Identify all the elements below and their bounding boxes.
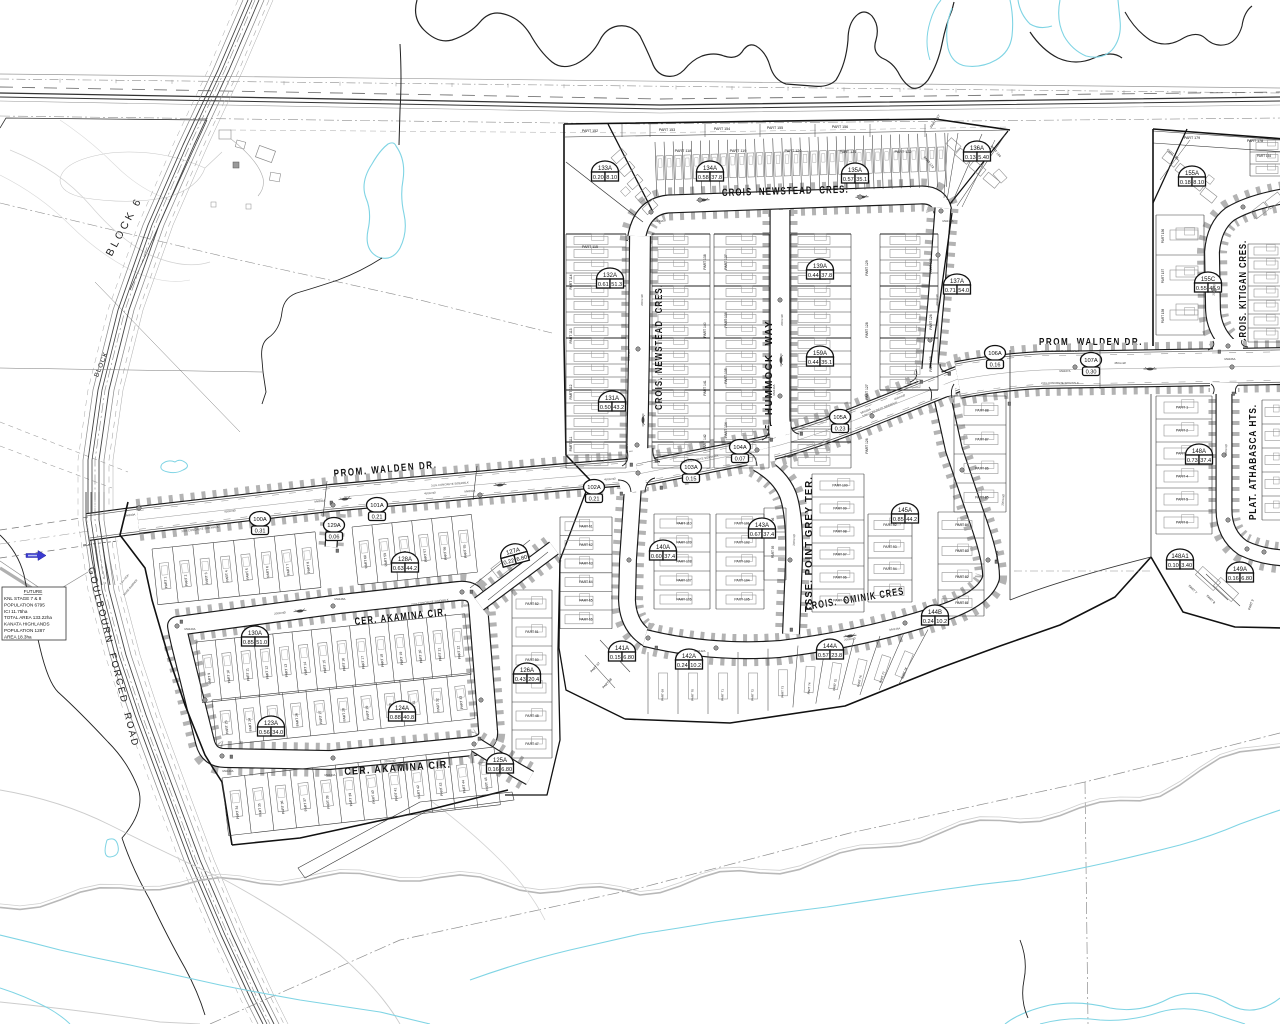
svg-text:107A: 107A — [1084, 358, 1098, 364]
svg-text:PART 135: PART 135 — [724, 368, 728, 383]
svg-text:37.4: 37.4 — [763, 532, 774, 538]
svg-text:6.80: 6.80 — [501, 767, 512, 773]
svg-text:140A: 140A — [656, 545, 670, 551]
svg-text:PART 61: PART 61 — [579, 524, 592, 528]
svg-text:ICI 11.75ha: ICI 11.75ha — [4, 609, 28, 614]
svg-text:PART 111: PART 111 — [569, 437, 573, 452]
svg-text:0.57: 0.57 — [818, 653, 829, 659]
svg-text:0.13: 0.13 — [965, 155, 976, 161]
svg-text:149A: 149A — [1233, 567, 1247, 573]
svg-text:PART 142: PART 142 — [703, 434, 707, 449]
svg-text:0.30: 0.30 — [1086, 370, 1097, 376]
svg-text:PART 119: PART 119 — [730, 149, 747, 153]
svg-text:MH107A: MH107A — [1060, 369, 1071, 373]
svg-text:0.16: 0.16 — [488, 767, 499, 773]
svg-text:129A: 129A — [327, 523, 341, 529]
svg-text:100A: 100A — [253, 517, 267, 523]
svg-text:0.71: 0.71 — [945, 288, 956, 294]
svg-text:MH106A: MH106A — [1225, 357, 1236, 361]
svg-text:6.80: 6.80 — [1241, 576, 1252, 582]
svg-text:0.18: 0.18 — [1180, 180, 1191, 186]
svg-text:PART 2: PART 2 — [1176, 429, 1188, 433]
svg-text:145A: 145A — [898, 508, 912, 514]
svg-text:PART 66: PART 66 — [579, 617, 592, 621]
svg-text:PART 87: PART 87 — [975, 438, 988, 442]
svg-text:2.0m CONCRETE SIDEWALK: 2.0m CONCRETE SIDEWALK — [1041, 349, 1079, 353]
svg-text:PART 94: PART 94 — [883, 567, 896, 571]
svg-text:0.31: 0.31 — [255, 529, 266, 535]
svg-text:TSSE. POINT GREY TER.: TSSE. POINT GREY TER. — [803, 476, 815, 612]
svg-text:PART 128: PART 128 — [865, 322, 869, 337]
svg-text:20.4: 20.4 — [528, 677, 539, 683]
svg-text:PART 93: PART 93 — [883, 545, 896, 549]
svg-text:PART 109: PART 109 — [676, 541, 691, 545]
svg-text:POPULATION 1287: POPULATION 1287 — [4, 628, 45, 633]
svg-text:6.80: 6.80 — [623, 655, 634, 661]
svg-text:0.44: 0.44 — [808, 273, 819, 279]
svg-text:148A1: 148A1 — [1171, 554, 1189, 560]
svg-text:123A: 123A — [264, 721, 278, 727]
svg-text:PART 114: PART 114 — [569, 274, 573, 289]
svg-text:10.2: 10.2 — [936, 619, 947, 625]
svg-text:PART 100: PART 100 — [832, 484, 847, 488]
svg-text:0.73: 0.73 — [1187, 458, 1198, 464]
svg-text:139A: 139A — [813, 264, 827, 270]
svg-text:135A: 135A — [848, 168, 862, 174]
svg-text:200mmØ: 200mmØ — [780, 313, 784, 325]
svg-text:PART 71: PART 71 — [721, 689, 725, 701]
svg-text:37.8: 37.8 — [821, 273, 832, 279]
svg-text:PART 50: PART 50 — [525, 658, 538, 662]
svg-text:0.20: 0.20 — [593, 175, 604, 181]
svg-text:44.2: 44.2 — [406, 566, 417, 572]
svg-text:43.2: 43.2 — [613, 405, 624, 411]
svg-text:TOTAL AREA 133.22ha: TOTAL AREA 133.22ha — [4, 615, 52, 620]
svg-text:159A: 159A — [813, 351, 827, 357]
svg-text:PART 134: PART 134 — [724, 422, 728, 437]
svg-text:PART 85: PART 85 — [975, 496, 988, 500]
svg-text:MH128A: MH128A — [335, 597, 346, 601]
svg-text:PART 95: PART 95 — [833, 599, 846, 603]
svg-text:0.15: 0.15 — [610, 655, 621, 661]
svg-text:POPULATION 6795: POPULATION 6795 — [4, 602, 45, 607]
svg-text:PART 157: PART 157 — [1161, 269, 1165, 284]
svg-text:PART 104: PART 104 — [734, 579, 749, 583]
svg-text:MH132A: MH132A — [627, 349, 631, 360]
svg-text:104A: 104A — [733, 445, 747, 451]
svg-text:51.3: 51.3 — [611, 282, 622, 288]
svg-text:PART 120: PART 120 — [784, 149, 801, 153]
svg-text:PART 106: PART 106 — [676, 598, 691, 602]
svg-text:FUTURE: FUTURE — [24, 589, 43, 594]
svg-text:144A: 144A — [823, 644, 837, 650]
svg-text:34.0: 34.0 — [272, 730, 283, 736]
svg-text:125A: 125A — [493, 758, 507, 764]
svg-text:37.8: 37.8 — [711, 175, 722, 181]
svg-text:136A: 136A — [970, 146, 984, 152]
svg-text:MH134A: MH134A — [653, 219, 664, 223]
svg-text:PART 156: PART 156 — [832, 125, 848, 129]
svg-text:PART 102: PART 102 — [734, 541, 749, 545]
svg-text:PART 73: PART 73 — [781, 686, 785, 698]
svg-text:CROIS. KITIGAN CRES.: CROIS. KITIGAN CRES. — [1237, 240, 1249, 344]
svg-text:PART 136: PART 136 — [724, 312, 728, 327]
svg-text:2.0m CONCRETE SIDEWALK: 2.0m CONCRETE SIDEWALK — [1041, 381, 1079, 385]
svg-text:PART 64: PART 64 — [579, 580, 592, 584]
svg-text:0.06: 0.06 — [329, 535, 340, 541]
svg-text:PLAT. ATHABASCA HTS.: PLAT. ATHABASCA HTS. — [1247, 404, 1259, 520]
svg-text:130A: 130A — [248, 631, 262, 637]
svg-text:CROIS. NEWSTEAD CRES.: CROIS. NEWSTEAD CRES. — [653, 284, 665, 410]
svg-text:PART 88: PART 88 — [975, 409, 988, 413]
svg-text:142A: 142A — [682, 654, 696, 660]
svg-text:0.10: 0.10 — [1168, 563, 1179, 569]
svg-text:KANATA HIGHLANDS: KANATA HIGHLANDS — [4, 622, 50, 627]
svg-text:PART 5: PART 5 — [1176, 498, 1188, 502]
svg-text:MH124A: MH124A — [325, 773, 336, 777]
svg-text:0.63: 0.63 — [393, 566, 404, 572]
svg-text:PART 137: PART 137 — [724, 254, 728, 269]
svg-text:5.40: 5.40 — [978, 155, 989, 161]
svg-text:0.56: 0.56 — [259, 730, 270, 736]
svg-text:PART 118: PART 118 — [675, 149, 692, 153]
svg-text:PART 126: PART 126 — [929, 314, 933, 329]
svg-text:0.43: 0.43 — [515, 677, 526, 683]
svg-text:PART 155: PART 155 — [767, 126, 783, 130]
svg-text:PART 122: PART 122 — [894, 150, 911, 154]
svg-text:143A: 143A — [755, 523, 769, 529]
svg-text:134A: 134A — [703, 166, 717, 172]
svg-text:0.21: 0.21 — [589, 497, 600, 503]
svg-text:0.07: 0.07 — [735, 457, 746, 463]
svg-text:PART 51: PART 51 — [525, 630, 538, 634]
svg-text:0.85: 0.85 — [243, 640, 254, 646]
svg-text:148A: 148A — [1192, 449, 1206, 455]
svg-text:PART 129: PART 129 — [865, 260, 869, 275]
svg-text:PART 99: PART 99 — [833, 507, 846, 511]
svg-text:124A: 124A — [395, 706, 409, 712]
svg-text:10.2: 10.2 — [690, 663, 701, 669]
svg-text:MH136A: MH136A — [772, 384, 776, 395]
svg-text:MH123A: MH123A — [223, 769, 234, 773]
svg-text:0.60: 0.60 — [651, 554, 662, 560]
svg-text:131A: 131A — [605, 396, 619, 402]
svg-text:PART 62: PART 62 — [579, 543, 592, 547]
svg-text:126A: 126A — [520, 668, 534, 674]
svg-text:PART 125: PART 125 — [929, 258, 933, 273]
svg-text:PART 6: PART 6 — [1176, 521, 1188, 525]
svg-text:105A: 105A — [833, 415, 847, 421]
svg-text:PART 152: PART 152 — [582, 129, 598, 133]
svg-text:155C: 155C — [1201, 277, 1216, 283]
svg-text:PART 1: PART 1 — [1176, 406, 1188, 410]
svg-text:0.15: 0.15 — [686, 477, 697, 483]
svg-text:0.61: 0.61 — [598, 282, 609, 288]
svg-text:PART 97: PART 97 — [833, 553, 846, 557]
svg-text:8.10: 8.10 — [606, 175, 617, 181]
svg-text:PART 128: PART 128 — [929, 356, 933, 371]
svg-text:PART 98: PART 98 — [833, 530, 846, 534]
svg-text:MH131A: MH131A — [625, 444, 629, 455]
svg-text:PART 154: PART 154 — [1257, 154, 1272, 158]
svg-text:132A: 132A — [603, 273, 617, 279]
svg-text:44.2: 44.2 — [906, 517, 917, 523]
svg-text:PART 83: PART 83 — [955, 549, 968, 553]
svg-text:106A: 106A — [988, 351, 1002, 357]
svg-text:PART 101: PART 101 — [734, 522, 749, 526]
svg-text:200mmØ: 200mmØ — [792, 533, 796, 545]
svg-text:141A: 141A — [615, 646, 629, 652]
svg-text:0.44: 0.44 — [808, 360, 819, 366]
svg-text:3.40: 3.40 — [1181, 563, 1192, 569]
svg-text:PART 95: PART 95 — [771, 545, 775, 558]
svg-text:200mmØ: 200mmØ — [935, 293, 939, 305]
svg-text:137A: 137A — [950, 279, 964, 285]
svg-text:MH120A: MH120A — [185, 627, 196, 631]
svg-text:PART 86: PART 86 — [975, 467, 988, 471]
svg-text:PART 48: PART 48 — [525, 714, 538, 718]
svg-text:PART 126: PART 126 — [865, 438, 869, 453]
svg-text:PART 107: PART 107 — [676, 579, 691, 583]
svg-text:PART 82: PART 82 — [955, 575, 968, 579]
svg-text:0.24: 0.24 — [677, 663, 688, 669]
svg-text:51.0: 51.0 — [256, 640, 267, 646]
svg-text:200mmØ: 200mmØ — [640, 293, 644, 305]
svg-text:0.23: 0.23 — [835, 427, 846, 433]
svg-text:450mmØ: 450mmØ — [1114, 361, 1126, 365]
svg-text:8.10: 8.10 — [1193, 180, 1204, 186]
svg-text:PART 121: PART 121 — [839, 150, 856, 154]
svg-text:37.4: 37.4 — [1200, 458, 1211, 464]
svg-text:PART 156: PART 156 — [1161, 229, 1165, 244]
svg-text:PART 110: PART 110 — [676, 522, 691, 526]
svg-text:54.0: 54.0 — [958, 288, 969, 294]
svg-text:PART 108: PART 108 — [676, 560, 691, 564]
svg-text:PART 138: PART 138 — [703, 254, 707, 269]
svg-text:PART 47: PART 47 — [525, 742, 538, 746]
svg-text:133A: 133A — [598, 166, 612, 172]
svg-text:AREA 18.3ha: AREA 18.3ha — [4, 634, 32, 639]
svg-text:144B: 144B — [928, 610, 942, 616]
svg-text:103A: 103A — [684, 465, 698, 471]
svg-text:101A: 101A — [370, 503, 384, 509]
svg-text:PART 154: PART 154 — [714, 127, 730, 131]
svg-text:PART 140: PART 140 — [703, 322, 707, 337]
svg-text:37.4: 37.4 — [664, 554, 675, 560]
svg-text:MH135A: MH135A — [943, 219, 954, 223]
svg-text:PART 65: PART 65 — [579, 599, 592, 603]
svg-text:PART 115: PART 115 — [582, 245, 598, 249]
svg-text:PART 179: PART 179 — [1184, 136, 1200, 140]
svg-text:PART 127: PART 127 — [865, 384, 869, 399]
svg-text:PART 96: PART 96 — [833, 576, 846, 580]
svg-text:102A: 102A — [587, 485, 601, 491]
svg-text:0.55: 0.55 — [1196, 286, 1207, 292]
svg-text:0.50: 0.50 — [600, 405, 611, 411]
svg-text:155A: 155A — [1185, 171, 1199, 177]
svg-text:23.8: 23.8 — [831, 653, 842, 659]
svg-text:200mmØ: 200mmØ — [1224, 443, 1228, 455]
svg-text:0.67: 0.67 — [750, 532, 761, 538]
svg-text:PART 4: PART 4 — [1176, 475, 1188, 479]
svg-text:PART 84: PART 84 — [955, 523, 968, 527]
svg-text:0.58: 0.58 — [698, 175, 709, 181]
svg-text:0.57: 0.57 — [843, 177, 854, 183]
svg-text:KNL STAGE 7 & 8: KNL STAGE 7 & 8 — [4, 596, 42, 601]
svg-text:PART 113: PART 113 — [569, 328, 573, 343]
svg-text:0.85: 0.85 — [893, 517, 904, 523]
svg-text:PART 141: PART 141 — [703, 380, 707, 395]
svg-text:PART 81: PART 81 — [955, 601, 968, 605]
svg-text:PART 63: PART 63 — [579, 562, 592, 566]
svg-text:PART 70: PART 70 — [691, 689, 695, 701]
svg-text:35.1: 35.1 — [821, 360, 832, 366]
svg-text:40.8: 40.8 — [403, 715, 414, 721]
svg-text:0.16: 0.16 — [1228, 576, 1239, 582]
svg-text:PART 72: PART 72 — [751, 689, 755, 701]
svg-text:0.16: 0.16 — [990, 363, 1001, 369]
svg-text:PART 103: PART 103 — [734, 560, 749, 564]
svg-text:0.24: 0.24 — [923, 619, 934, 625]
svg-text:0.88: 0.88 — [390, 715, 401, 721]
svg-text:0.21: 0.21 — [372, 515, 383, 521]
svg-text:PART 112: PART 112 — [569, 384, 573, 399]
svg-text:PART 52: PART 52 — [525, 602, 538, 606]
svg-text:35.1: 35.1 — [856, 177, 867, 183]
svg-text:PART 105: PART 105 — [734, 598, 749, 602]
svg-text:PART 69: PART 69 — [661, 689, 665, 701]
svg-text:128A: 128A — [398, 557, 412, 563]
svg-text:PART 153: PART 153 — [659, 128, 675, 132]
svg-text:MH142A: MH142A — [695, 649, 706, 653]
svg-text:PART 158: PART 158 — [1161, 309, 1165, 324]
